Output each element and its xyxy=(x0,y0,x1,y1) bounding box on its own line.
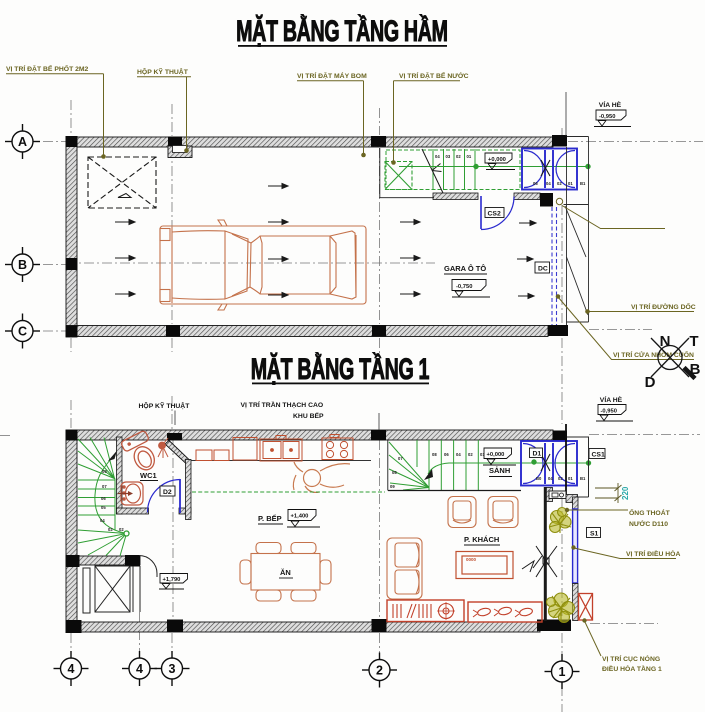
svg-text:VÍA HÈ: VÍA HÈ xyxy=(599,100,622,109)
svg-text:D2: D2 xyxy=(163,489,172,496)
svg-text:3: 3 xyxy=(169,662,176,676)
svg-text:0000: 0000 xyxy=(466,557,477,562)
svg-text:220: 220 xyxy=(621,486,630,500)
svg-text:MẶT BẰNG TẦNG HẦM: MẶT BẰNG TẦNG HẦM xyxy=(236,14,448,48)
svg-text:01: 01 xyxy=(568,181,573,186)
svg-text:01: 01 xyxy=(467,154,472,159)
svg-text:+0,000: +0,000 xyxy=(488,157,506,163)
svg-text:+0,000: +0,000 xyxy=(487,452,505,458)
svg-text:01: 01 xyxy=(568,476,573,481)
svg-text:04: 04 xyxy=(546,181,551,186)
svg-text:GARA Ô TÔ: GARA Ô TÔ xyxy=(444,264,486,273)
svg-text:-0,750: -0,750 xyxy=(456,284,472,290)
svg-text:CS1: CS1 xyxy=(592,452,605,459)
svg-text:VỊ TRÍ CỤC NÓNG: VỊ TRÍ CỤC NÓNG xyxy=(602,654,660,663)
svg-text:A: A xyxy=(18,135,27,149)
svg-text:SẢNH: SẢNH xyxy=(489,466,510,475)
svg-text:03: 03 xyxy=(446,154,451,159)
svg-text:08: 08 xyxy=(432,452,437,457)
svg-text:T: T xyxy=(689,333,698,350)
svg-text:P. KHÁCH: P. KHÁCH xyxy=(464,535,499,544)
svg-text:B: B xyxy=(18,258,27,272)
svg-text:07: 07 xyxy=(398,456,403,461)
svg-text:02: 02 xyxy=(108,527,113,532)
svg-text:VỊ TRÍ ĐẶT BỂ NƯỚC: VỊ TRÍ ĐẶT BỂ NƯỚC xyxy=(399,71,469,80)
svg-text:N: N xyxy=(660,333,671,350)
svg-text:02: 02 xyxy=(558,476,563,481)
svg-text:B1: B1 xyxy=(580,181,586,186)
svg-text:CS2: CS2 xyxy=(488,211,501,218)
svg-text:B1: B1 xyxy=(580,476,586,481)
svg-text:08: 08 xyxy=(392,470,397,475)
svg-text:-0,950: -0,950 xyxy=(599,114,615,120)
svg-text:-0,950: -0,950 xyxy=(601,408,617,414)
svg-text:WC1: WC1 xyxy=(140,471,157,480)
svg-text:02: 02 xyxy=(557,181,562,186)
svg-text:04: 04 xyxy=(548,476,553,481)
svg-text:4: 4 xyxy=(68,662,75,676)
svg-text:B: B xyxy=(690,361,701,378)
svg-text:MẶT BẰNG TẦNG 1: MẶT BẰNG TẦNG 1 xyxy=(251,352,430,386)
svg-text:VÍA HÈ: VÍA HÈ xyxy=(600,395,623,404)
svg-text:04: 04 xyxy=(100,518,105,523)
svg-text:04: 04 xyxy=(435,154,440,159)
svg-text:07: 07 xyxy=(102,484,107,489)
svg-text:B0: B0 xyxy=(536,476,542,481)
svg-text:02: 02 xyxy=(468,452,473,457)
svg-text:HỘP KỸ THUẬT: HỘP KỸ THUẬT xyxy=(139,401,191,410)
svg-text:VỊ TRÍ ĐẶT MÁY BOM: VỊ TRÍ ĐẶT MÁY BOM xyxy=(297,71,367,80)
svg-text:+1,790: +1,790 xyxy=(163,577,181,583)
svg-text:D1: D1 xyxy=(533,451,542,458)
svg-text:02: 02 xyxy=(456,154,461,159)
svg-text:1: 1 xyxy=(559,665,566,679)
svg-text:06: 06 xyxy=(101,496,106,501)
svg-text:2: 2 xyxy=(376,664,383,678)
svg-text:ĂN: ĂN xyxy=(280,568,291,577)
svg-text:+1,400: +1,400 xyxy=(291,514,309,520)
svg-text:09: 09 xyxy=(390,484,395,489)
svg-text:NƯỚC D110: NƯỚC D110 xyxy=(629,519,668,528)
svg-text:C: C xyxy=(18,325,27,339)
svg-text:06: 06 xyxy=(444,452,449,457)
svg-text:4: 4 xyxy=(136,662,143,676)
svg-text:05: 05 xyxy=(101,505,106,510)
svg-text:HỘP KỸ THUẬT: HỘP KỸ THUẬT xyxy=(137,67,189,76)
svg-text:S1: S1 xyxy=(590,531,599,538)
svg-text:04: 04 xyxy=(456,452,461,457)
svg-text:02: 02 xyxy=(119,527,124,532)
svg-text:06: 06 xyxy=(533,181,538,186)
svg-text:DC: DC xyxy=(538,266,548,273)
svg-text:D: D xyxy=(645,374,656,391)
svg-text:09: 09 xyxy=(102,469,107,474)
svg-text:P. BẾP: P. BẾP xyxy=(258,513,282,523)
